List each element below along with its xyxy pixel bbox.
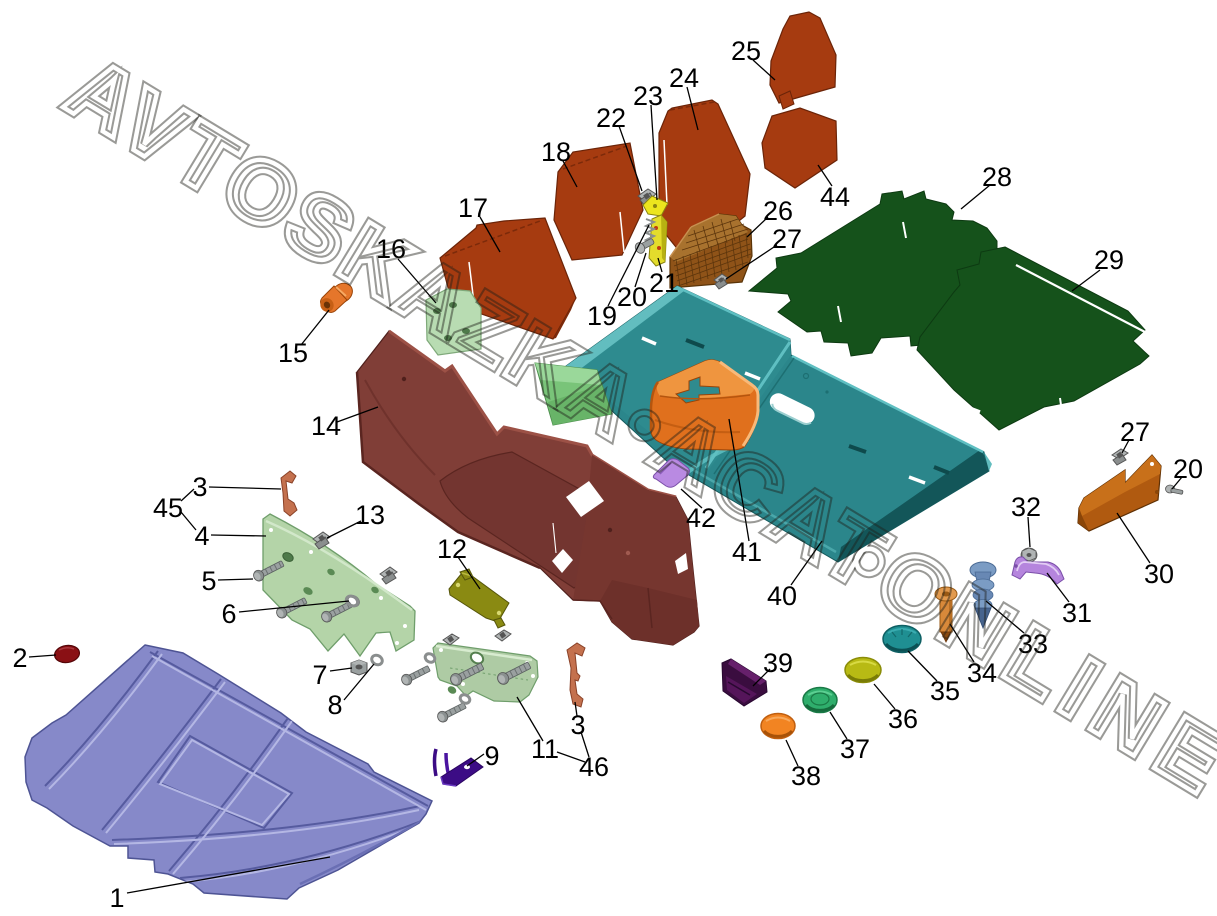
svg-text:12: 12 <box>437 534 467 564</box>
svg-text:4: 4 <box>194 521 209 551</box>
svg-text:18: 18 <box>541 137 571 167</box>
svg-text:37: 37 <box>840 734 870 764</box>
svg-text:3: 3 <box>192 472 207 502</box>
svg-text:28: 28 <box>982 162 1012 192</box>
svg-text:20: 20 <box>617 282 647 312</box>
svg-text:27: 27 <box>772 224 802 254</box>
svg-text:7: 7 <box>312 660 327 690</box>
svg-text:35: 35 <box>930 676 960 706</box>
svg-text:17: 17 <box>458 193 488 223</box>
svg-text:46: 46 <box>579 752 609 782</box>
svg-text:5: 5 <box>201 566 216 596</box>
svg-text:15: 15 <box>278 338 308 368</box>
svg-text:39: 39 <box>763 648 793 678</box>
svg-text:44: 44 <box>820 182 850 212</box>
svg-text:22: 22 <box>596 103 626 133</box>
svg-text:14: 14 <box>311 411 341 441</box>
svg-text:21: 21 <box>649 268 679 298</box>
svg-text:26: 26 <box>763 196 793 226</box>
svg-text:29: 29 <box>1094 245 1124 275</box>
svg-text:9: 9 <box>484 741 499 771</box>
svg-text:20: 20 <box>1173 454 1203 484</box>
svg-text:23: 23 <box>633 81 663 111</box>
svg-text:25: 25 <box>731 36 761 66</box>
svg-text:40: 40 <box>767 581 797 611</box>
svg-text:19: 19 <box>587 301 617 331</box>
svg-text:45: 45 <box>153 493 183 523</box>
svg-text:6: 6 <box>221 599 236 629</box>
svg-text:27: 27 <box>1120 417 1150 447</box>
svg-text:36: 36 <box>888 704 918 734</box>
svg-text:3: 3 <box>570 710 585 740</box>
svg-text:38: 38 <box>791 761 821 791</box>
svg-text:32: 32 <box>1011 492 1041 522</box>
svg-text:13: 13 <box>355 500 385 530</box>
svg-text:11: 11 <box>531 734 559 764</box>
svg-text:24: 24 <box>669 63 699 93</box>
svg-text:8: 8 <box>327 690 342 720</box>
svg-text:2: 2 <box>12 643 27 673</box>
svg-text:1: 1 <box>109 883 124 913</box>
svg-text:30: 30 <box>1144 559 1174 589</box>
